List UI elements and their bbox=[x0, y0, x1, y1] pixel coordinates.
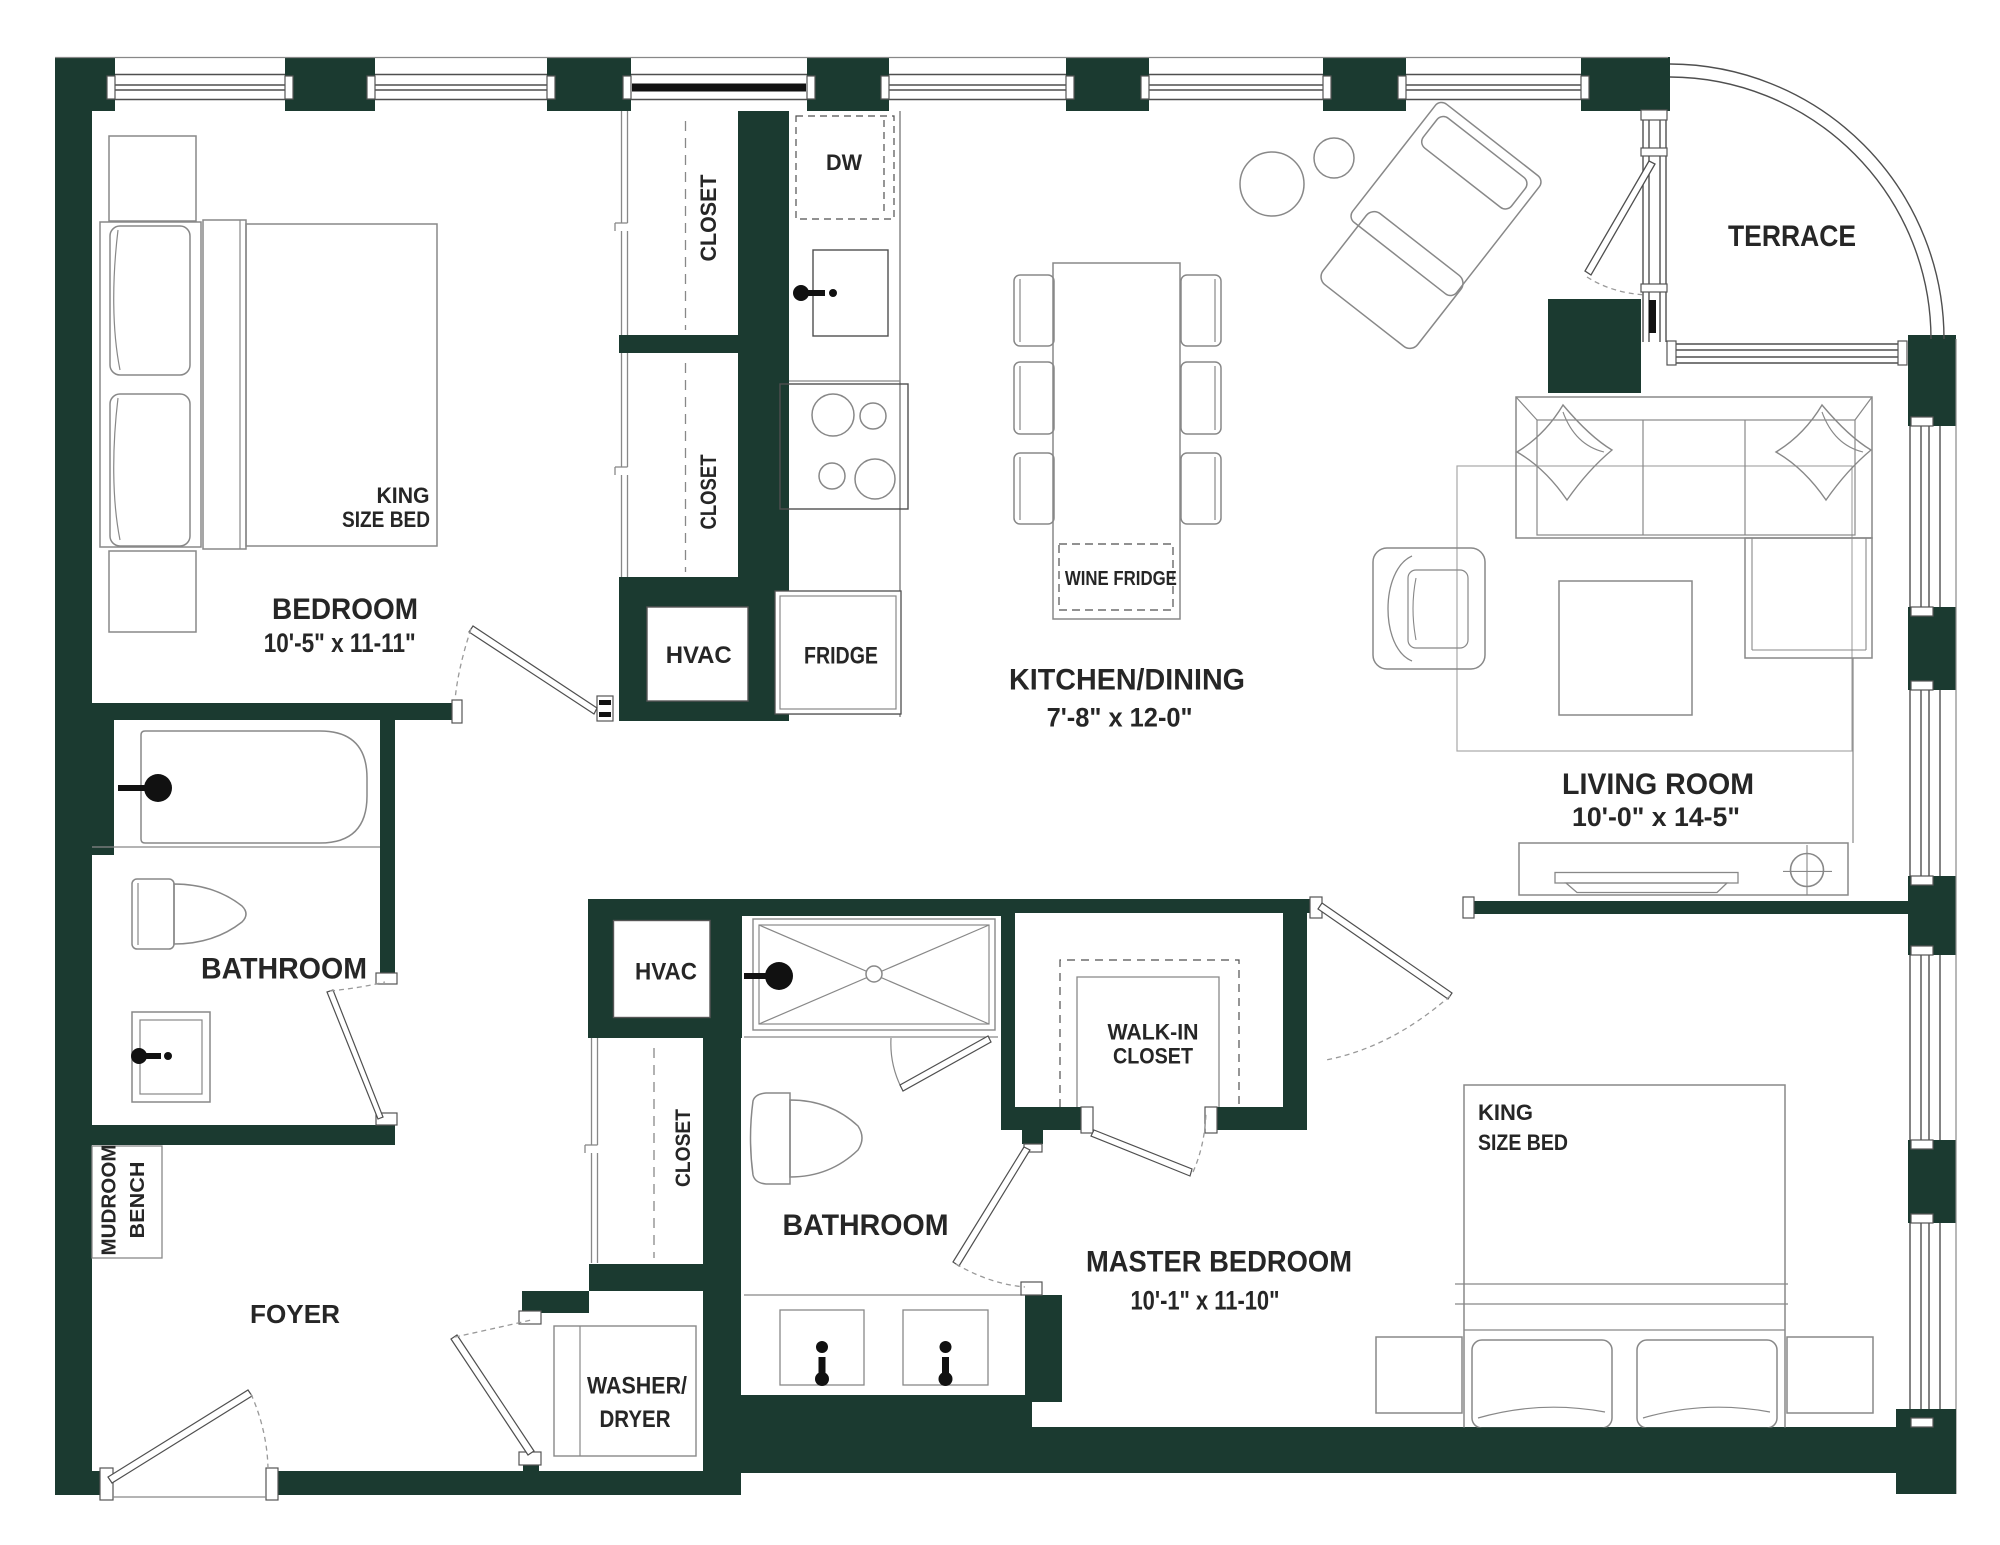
svg-text:HVAC: HVAC bbox=[666, 642, 732, 669]
svg-text:CLOSET: CLOSET bbox=[672, 1109, 695, 1187]
svg-text:FRIDGE: FRIDGE bbox=[804, 643, 878, 670]
svg-text:TERRACE: TERRACE bbox=[1728, 220, 1856, 253]
svg-text:BATHROOM: BATHROOM bbox=[201, 953, 367, 986]
svg-text:10'-0" x 14-5": 10'-0" x 14-5" bbox=[1572, 802, 1740, 832]
svg-text:CLOSET: CLOSET bbox=[696, 174, 721, 262]
svg-text:WASHER/: WASHER/ bbox=[587, 1373, 687, 1400]
svg-text:7'-8" x 12-0": 7'-8" x 12-0" bbox=[1047, 703, 1193, 733]
svg-text:WALK-IN: WALK-IN bbox=[1108, 1020, 1199, 1045]
svg-text:MASTER BEDROOM: MASTER BEDROOM bbox=[1086, 1246, 1352, 1279]
svg-text:CLOSET: CLOSET bbox=[696, 454, 721, 529]
svg-text:DW: DW bbox=[826, 150, 862, 175]
svg-text:CLOSET: CLOSET bbox=[1113, 1044, 1193, 1069]
svg-text:SIZE BED: SIZE BED bbox=[342, 507, 430, 532]
svg-text:HVAC: HVAC bbox=[635, 959, 697, 986]
svg-text:KING: KING bbox=[377, 483, 430, 508]
svg-text:DRYER: DRYER bbox=[600, 1406, 671, 1433]
svg-text:SIZE BED: SIZE BED bbox=[1478, 1130, 1568, 1155]
svg-text:WINE FRIDGE: WINE FRIDGE bbox=[1065, 568, 1177, 590]
svg-text:10'-5" x 11-11": 10'-5" x 11-11" bbox=[264, 628, 416, 658]
svg-text:MUDROOM: MUDROOM bbox=[99, 1145, 121, 1256]
svg-text:FOYER: FOYER bbox=[250, 1299, 340, 1329]
svg-text:KING: KING bbox=[1478, 1100, 1533, 1125]
svg-text:BEDROOM: BEDROOM bbox=[272, 593, 418, 626]
svg-text:KITCHEN/DINING: KITCHEN/DINING bbox=[1009, 664, 1245, 697]
svg-text:10'-1" x 11-10": 10'-1" x 11-10" bbox=[1131, 1286, 1280, 1316]
svg-text:BATHROOM: BATHROOM bbox=[783, 1209, 949, 1242]
svg-text:BENCH: BENCH bbox=[127, 1162, 149, 1239]
svg-text:LIVING ROOM: LIVING ROOM bbox=[1562, 768, 1754, 801]
